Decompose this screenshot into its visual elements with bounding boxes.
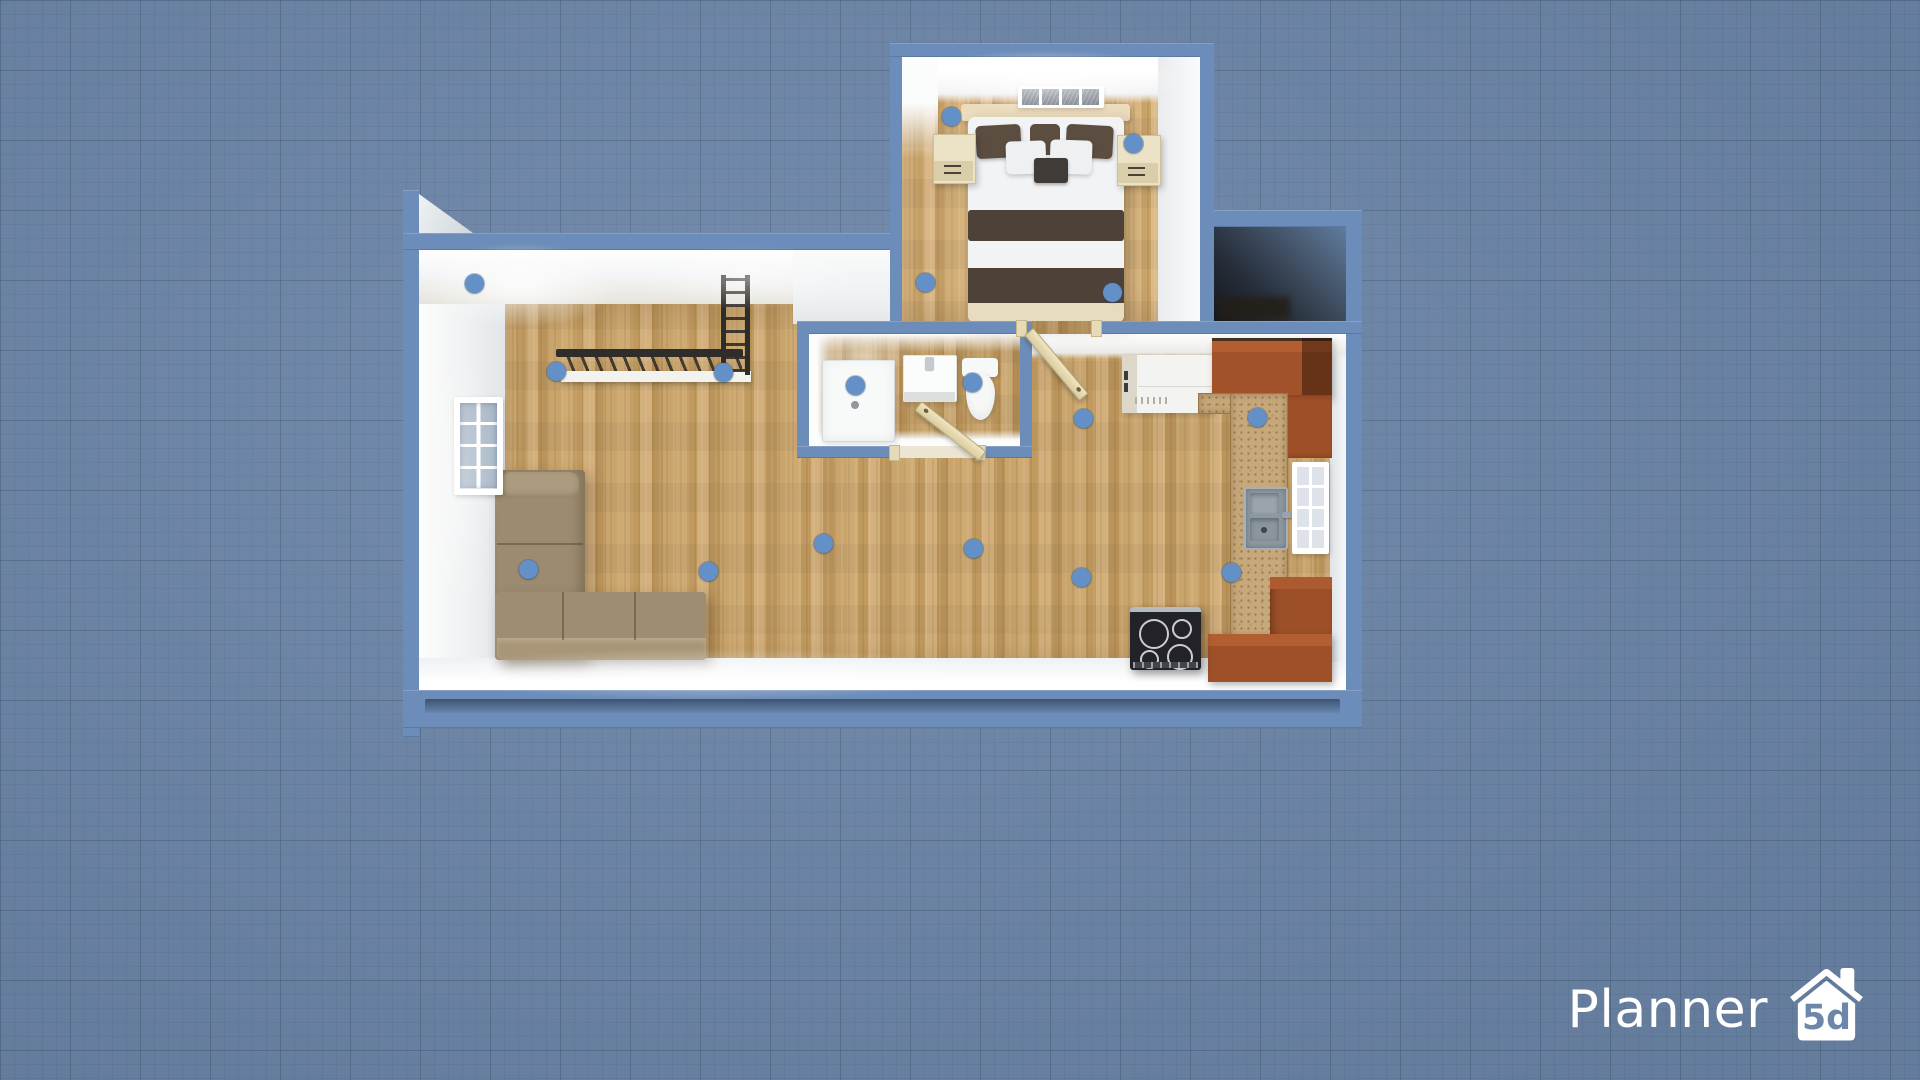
kitchen-cabinet-bottom[interactable] <box>1208 634 1332 682</box>
wall-left[interactable] <box>403 190 419 737</box>
item-marker[interactable] <box>963 373 982 392</box>
item-marker[interactable] <box>1074 409 1093 428</box>
fridge-handle <box>1124 383 1128 392</box>
wall-middle[interactable] <box>797 321 1025 334</box>
wall-middle[interactable] <box>1092 321 1362 334</box>
fridge-counter-seam <box>1138 386 1212 387</box>
faucet-icon <box>925 357 934 370</box>
item-marker[interactable] <box>547 362 566 381</box>
fridge-handle <box>1124 371 1128 380</box>
burner-icon <box>1139 619 1169 649</box>
item-marker[interactable] <box>1222 563 1241 582</box>
ladder-rungs <box>724 278 747 373</box>
corner-pocket-face <box>793 250 892 324</box>
ladder-rail[interactable] <box>721 275 750 375</box>
item-marker[interactable] <box>1248 408 1267 427</box>
item-marker[interactable] <box>699 562 718 581</box>
door-handle-icon <box>923 408 929 414</box>
closet-floor-shadow <box>1218 297 1290 319</box>
corner-sofa-armrest[interactable] <box>501 472 579 498</box>
wall-bottom[interactable] <box>403 690 1362 728</box>
right-wall-face <box>1330 334 1346 662</box>
kitchen-window-panes <box>1297 467 1324 549</box>
sink-vanity-front <box>904 392 955 401</box>
bed-blanket-stripe <box>968 268 1124 303</box>
wall-right[interactable] <box>1346 210 1362 728</box>
item-marker[interactable] <box>1103 283 1122 302</box>
viewport-3d[interactable]: Planner 5d <box>0 0 1920 1080</box>
sink-drain-icon <box>1261 527 1267 533</box>
item-marker[interactable] <box>465 274 484 293</box>
bedroom-wall-top[interactable] <box>890 43 1214 57</box>
sofa-cushion-seam <box>497 543 583 545</box>
corner-sofa-front <box>497 638 706 660</box>
logo-wordmark: Planner <box>1568 984 1768 1044</box>
drawer-handle <box>1128 174 1145 176</box>
door-frame <box>1091 320 1102 337</box>
drawer-handle <box>1128 167 1145 169</box>
kitchen-cabinet-top-face <box>1270 577 1332 589</box>
door-frame <box>889 445 900 461</box>
sink-basin <box>1250 493 1279 514</box>
cooktop-edge <box>1130 607 1201 612</box>
closet-wall-top[interactable] <box>1214 210 1362 227</box>
item-marker[interactable] <box>1072 568 1091 587</box>
item-marker[interactable] <box>1124 134 1143 153</box>
item-marker[interactable] <box>964 539 983 558</box>
bathroom-wall-left[interactable] <box>797 321 809 458</box>
planner5d-logo: Planner 5d <box>1568 952 1870 1044</box>
wall-top[interactable] <box>403 233 902 250</box>
burner-icon <box>1172 619 1192 639</box>
logo-house-badge: 5d <box>1783 952 1870 1044</box>
wall-rack-bar[interactable] <box>556 349 743 357</box>
bedroom-window-panes <box>1022 89 1100 105</box>
cooktop-controls <box>1133 662 1198 668</box>
door-handle-icon <box>1076 386 1082 392</box>
item-marker[interactable] <box>814 534 833 553</box>
bedroom-wall-left[interactable] <box>890 43 902 334</box>
item-marker[interactable] <box>942 107 961 126</box>
living-room-window-panes <box>460 403 497 489</box>
shower-tray[interactable] <box>822 360 895 442</box>
nightstand-front <box>934 161 973 181</box>
bedroom-wall-face <box>1158 57 1200 321</box>
kitchen-cabinet-shadow <box>1302 338 1332 395</box>
bathroom-wall-face <box>809 334 1020 352</box>
drawer-handle <box>944 172 961 174</box>
bathroom-wall-bottom[interactable] <box>797 446 898 458</box>
bedroom-wall-right[interactable] <box>1200 43 1214 334</box>
nightstand-front <box>1118 163 1158 183</box>
cushion-dark <box>1034 158 1068 183</box>
drawer-handle <box>944 165 961 167</box>
item-marker[interactable] <box>519 560 538 579</box>
item-marker[interactable] <box>916 273 935 292</box>
logo-badge-text: 5d <box>1802 998 1851 1038</box>
item-marker[interactable] <box>714 363 733 382</box>
bottom-wall-face <box>413 658 1346 692</box>
shower-drain-icon <box>851 401 859 409</box>
bed-blanket-stripe <box>968 210 1124 241</box>
item-marker[interactable] <box>846 376 865 395</box>
sofa-cushion-seam <box>634 592 636 640</box>
fridge-vent <box>1135 397 1168 404</box>
sofa-cushion-seam <box>562 592 564 640</box>
wall-bottom-recess <box>425 699 1340 713</box>
